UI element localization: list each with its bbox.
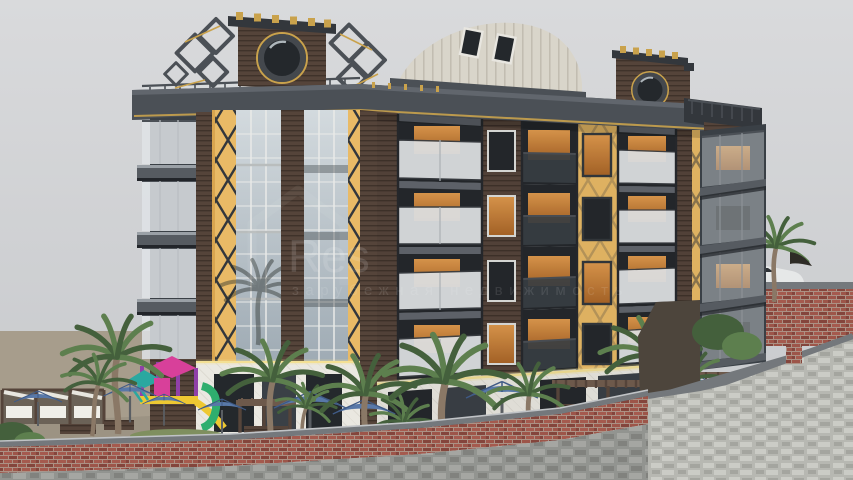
roof-skylight bbox=[460, 28, 483, 57]
roof-skylight bbox=[493, 34, 516, 63]
brick-pillar bbox=[786, 294, 802, 364]
yellow-lattice-strip bbox=[212, 110, 236, 362]
watermark-brand: Res bbox=[288, 230, 370, 282]
oculus-window bbox=[261, 37, 303, 79]
cabana-row bbox=[2, 390, 104, 424]
corner-wood-column bbox=[196, 112, 212, 362]
render-canvas: Res зарубежная недвижимость bbox=[0, 0, 853, 480]
watermark-tagline: зарубежная недвижимость bbox=[292, 282, 629, 299]
oculus-window bbox=[635, 75, 665, 105]
architectural-render: Res зарубежная недвижимость bbox=[0, 0, 853, 480]
bush bbox=[722, 332, 762, 360]
